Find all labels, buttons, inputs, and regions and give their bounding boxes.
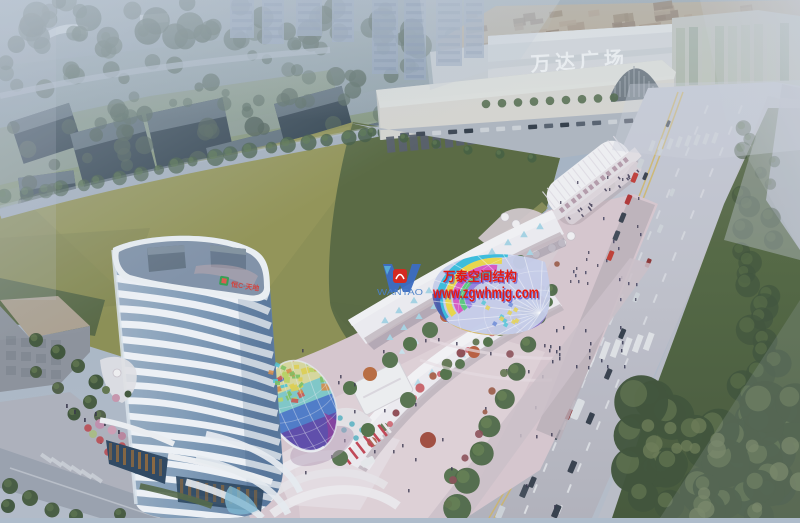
- svg-text:www.zgwhmjg.com: www.zgwhmjg.com: [432, 285, 539, 302]
- svg-text:万泰空间结构: 万泰空间结构: [442, 269, 517, 284]
- svg-text:WANTAO: WANTAO: [377, 288, 423, 297]
